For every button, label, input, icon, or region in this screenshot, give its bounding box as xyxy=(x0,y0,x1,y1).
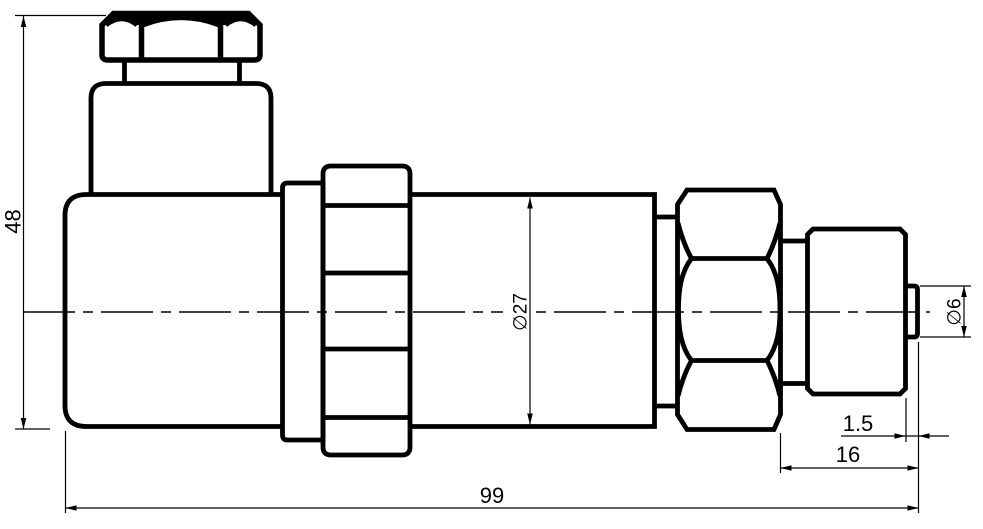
svg-text:1.5: 1.5 xyxy=(843,411,874,436)
svg-text:99: 99 xyxy=(480,483,504,508)
svg-text:16: 16 xyxy=(836,442,860,467)
svg-text:48: 48 xyxy=(1,209,26,233)
svg-text:∅27: ∅27 xyxy=(511,293,532,331)
svg-text:∅6: ∅6 xyxy=(945,298,966,325)
